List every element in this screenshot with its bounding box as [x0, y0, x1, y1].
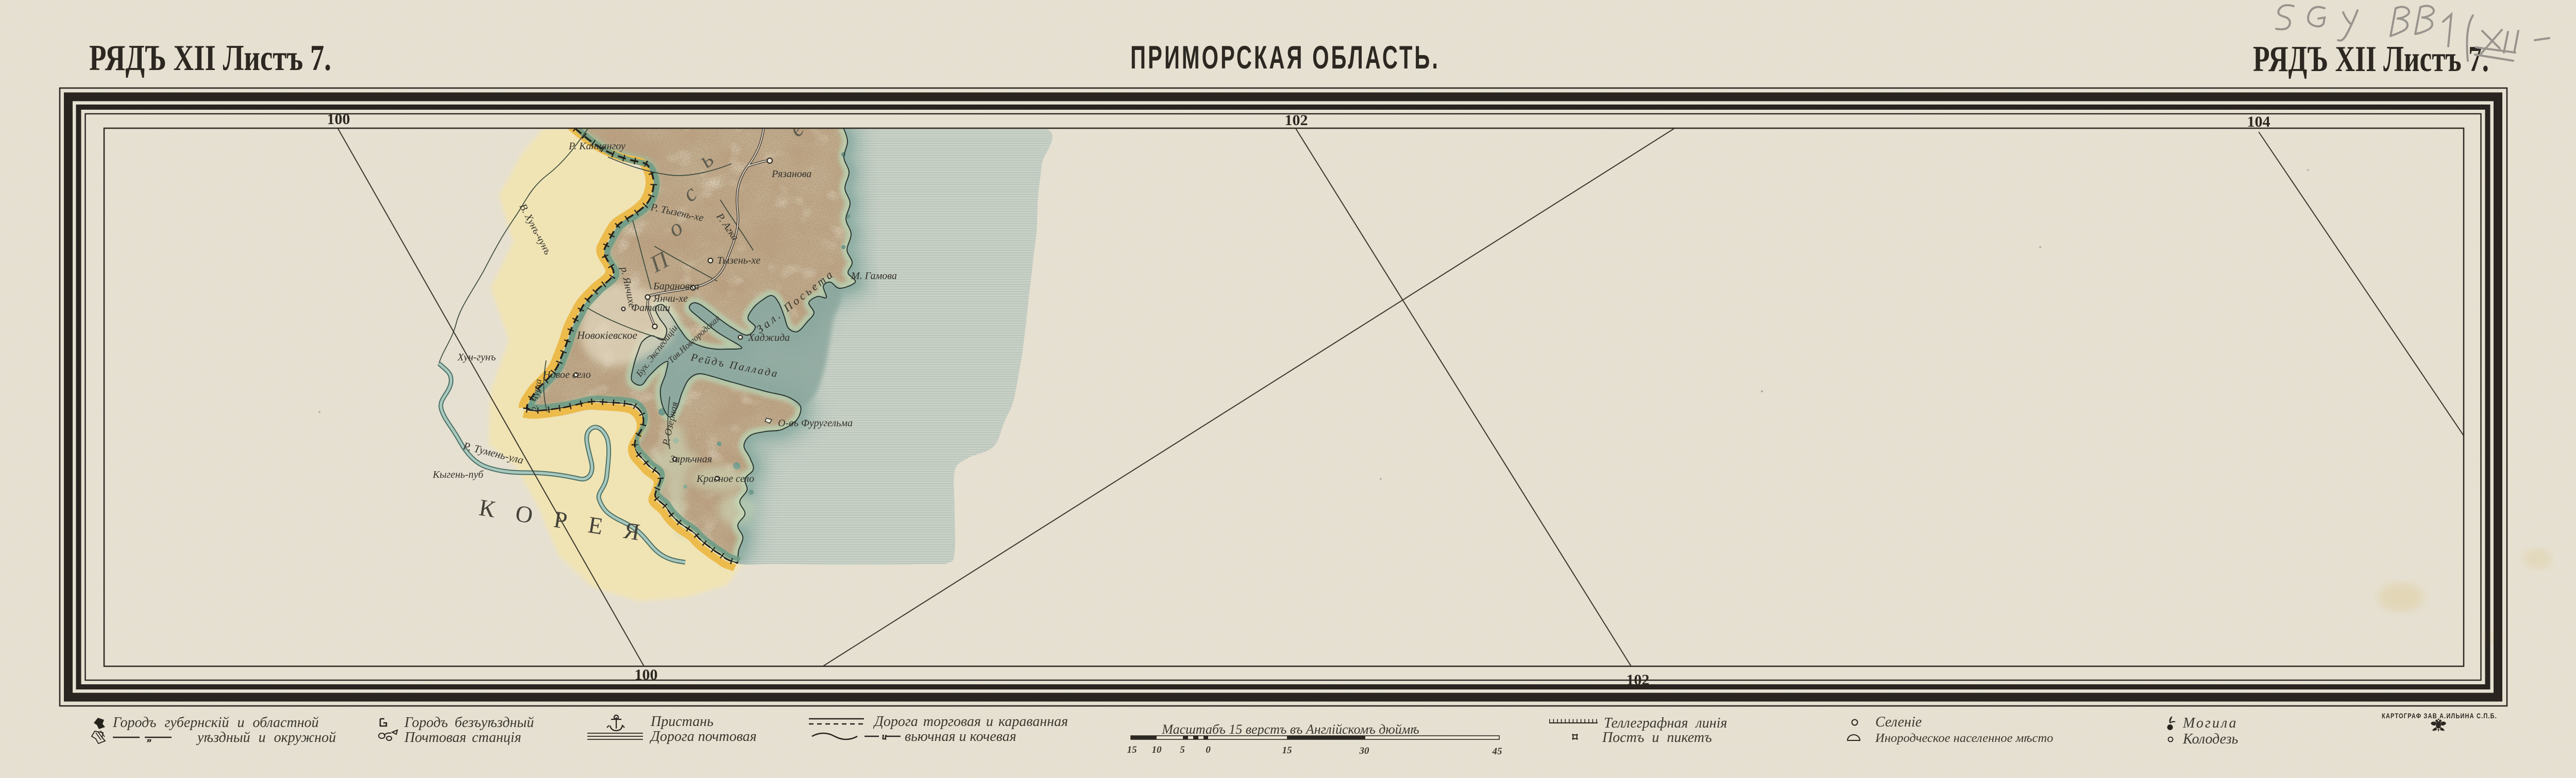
- svg-text:КАРТОГРАФ ЗАВ А.ИЛЬИНА С.П.Б.: КАРТОГРАФ ЗАВ А.ИЛЬИНА С.П.Б.: [2382, 712, 2497, 720]
- svg-text:Дорога почтовая: Дорога почтовая: [649, 729, 757, 745]
- svg-text:О-въ Фуругельма: О-въ Фуругельма: [778, 418, 853, 429]
- svg-text:Городъ безъуѣздный: Городъ безъуѣздный: [404, 715, 534, 731]
- svg-text:Тызень-хе: Тызень-хе: [717, 255, 760, 266]
- svg-text:М. Гамова: М. Гамова: [851, 270, 897, 282]
- svg-text:Теллеграфная линія: Теллеграфная линія: [1604, 715, 1727, 731]
- svg-text:100: 100: [327, 111, 350, 128]
- svg-text:и: и: [882, 731, 887, 741]
- svg-text:Фаташи: Фаташи: [631, 302, 670, 314]
- svg-text:15: 15: [1282, 745, 1293, 756]
- svg-text:Зарѣчная: Зарѣчная: [670, 454, 712, 465]
- svg-text:Почтовая станція: Почтовая станція: [404, 730, 521, 746]
- svg-text:РЯДЪ XII Листъ 7.: РЯДЪ XII Листъ 7.: [2253, 39, 2489, 79]
- svg-text:Новокіевское: Новокіевское: [577, 329, 637, 341]
- svg-text:100: 100: [635, 666, 658, 683]
- svg-text:102: 102: [1626, 671, 1650, 688]
- svg-text:Могила: Могила: [2182, 715, 2238, 731]
- svg-text:Селеніе: Селеніе: [1875, 714, 1922, 730]
- svg-text:Рязанова: Рязанова: [771, 168, 811, 180]
- svg-text:Хаджида: Хаджида: [748, 332, 790, 343]
- svg-text:0: 0: [1206, 745, 1211, 755]
- svg-text:15: 15: [1127, 745, 1138, 755]
- svg-text:Новое село: Новое село: [543, 369, 591, 381]
- svg-text:„: „: [147, 732, 152, 743]
- svg-text:Хун-гунъ: Хун-гунъ: [457, 352, 496, 363]
- svg-text:Инородческое населенное мѣсто: Инородческое населенное мѣсто: [1875, 731, 2053, 745]
- svg-text:Р. Канцангоу: Р. Канцангоу: [568, 141, 625, 152]
- svg-text:45: 45: [1492, 746, 1503, 757]
- svg-text:вьючная и кочевая: вьючная и кочевая: [905, 729, 1016, 745]
- svg-text:Пристань: Пристань: [650, 714, 714, 730]
- svg-text:Красное село: Красное село: [696, 473, 754, 485]
- svg-text:Масштабъ 15 верстъ въ Англ: Масштабъ 15 верстъ въ Англійскомъ дюймѣ: [1161, 722, 1419, 737]
- svg-text:5: 5: [1180, 745, 1185, 755]
- svg-text:Дорога торговая и караванная: Дорога торговая и караванная: [873, 714, 1068, 730]
- svg-text:Барановка: Барановка: [653, 281, 699, 292]
- svg-text:РЯДЪ XII Листъ 7.: РЯДЪ XII Листъ 7.: [89, 38, 331, 78]
- svg-text:Кыгень-пуб: Кыгень-пуб: [432, 469, 484, 480]
- svg-text:ПРИМОРСКАЯ ОБЛАСТЬ.: ПРИМОРСКАЯ ОБЛАСТЬ.: [1130, 40, 1440, 76]
- svg-text:104: 104: [2247, 113, 2270, 130]
- svg-text:Колодезь: Колодезь: [2182, 731, 2238, 747]
- svg-text:уѣздный и окружной: уѣздный и окружной: [196, 730, 336, 746]
- svg-text:102: 102: [1285, 112, 1308, 129]
- svg-text:30: 30: [1359, 746, 1370, 756]
- svg-text:Постъ и пикетъ: Постъ и пикетъ: [1602, 730, 1712, 746]
- svg-text:10: 10: [1152, 745, 1162, 755]
- svg-text:Городъ губернскій и областной: Городъ губернскій и областной: [112, 715, 319, 731]
